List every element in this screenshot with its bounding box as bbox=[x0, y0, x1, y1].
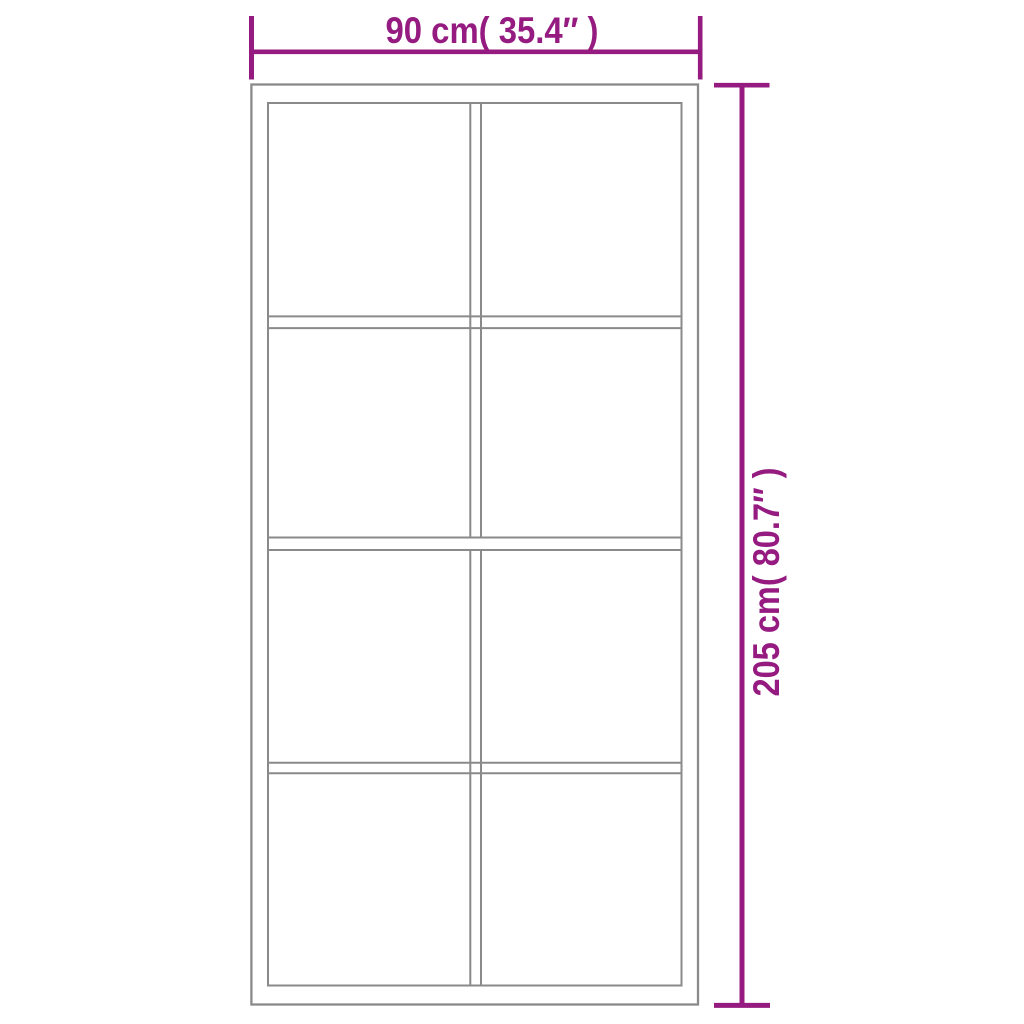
svg-text:205 cm( 80.7″ ): 205 cm( 80.7″ ) bbox=[746, 468, 787, 697]
svg-text:90 cm( 35.4″ ): 90 cm( 35.4″ ) bbox=[386, 10, 599, 51]
